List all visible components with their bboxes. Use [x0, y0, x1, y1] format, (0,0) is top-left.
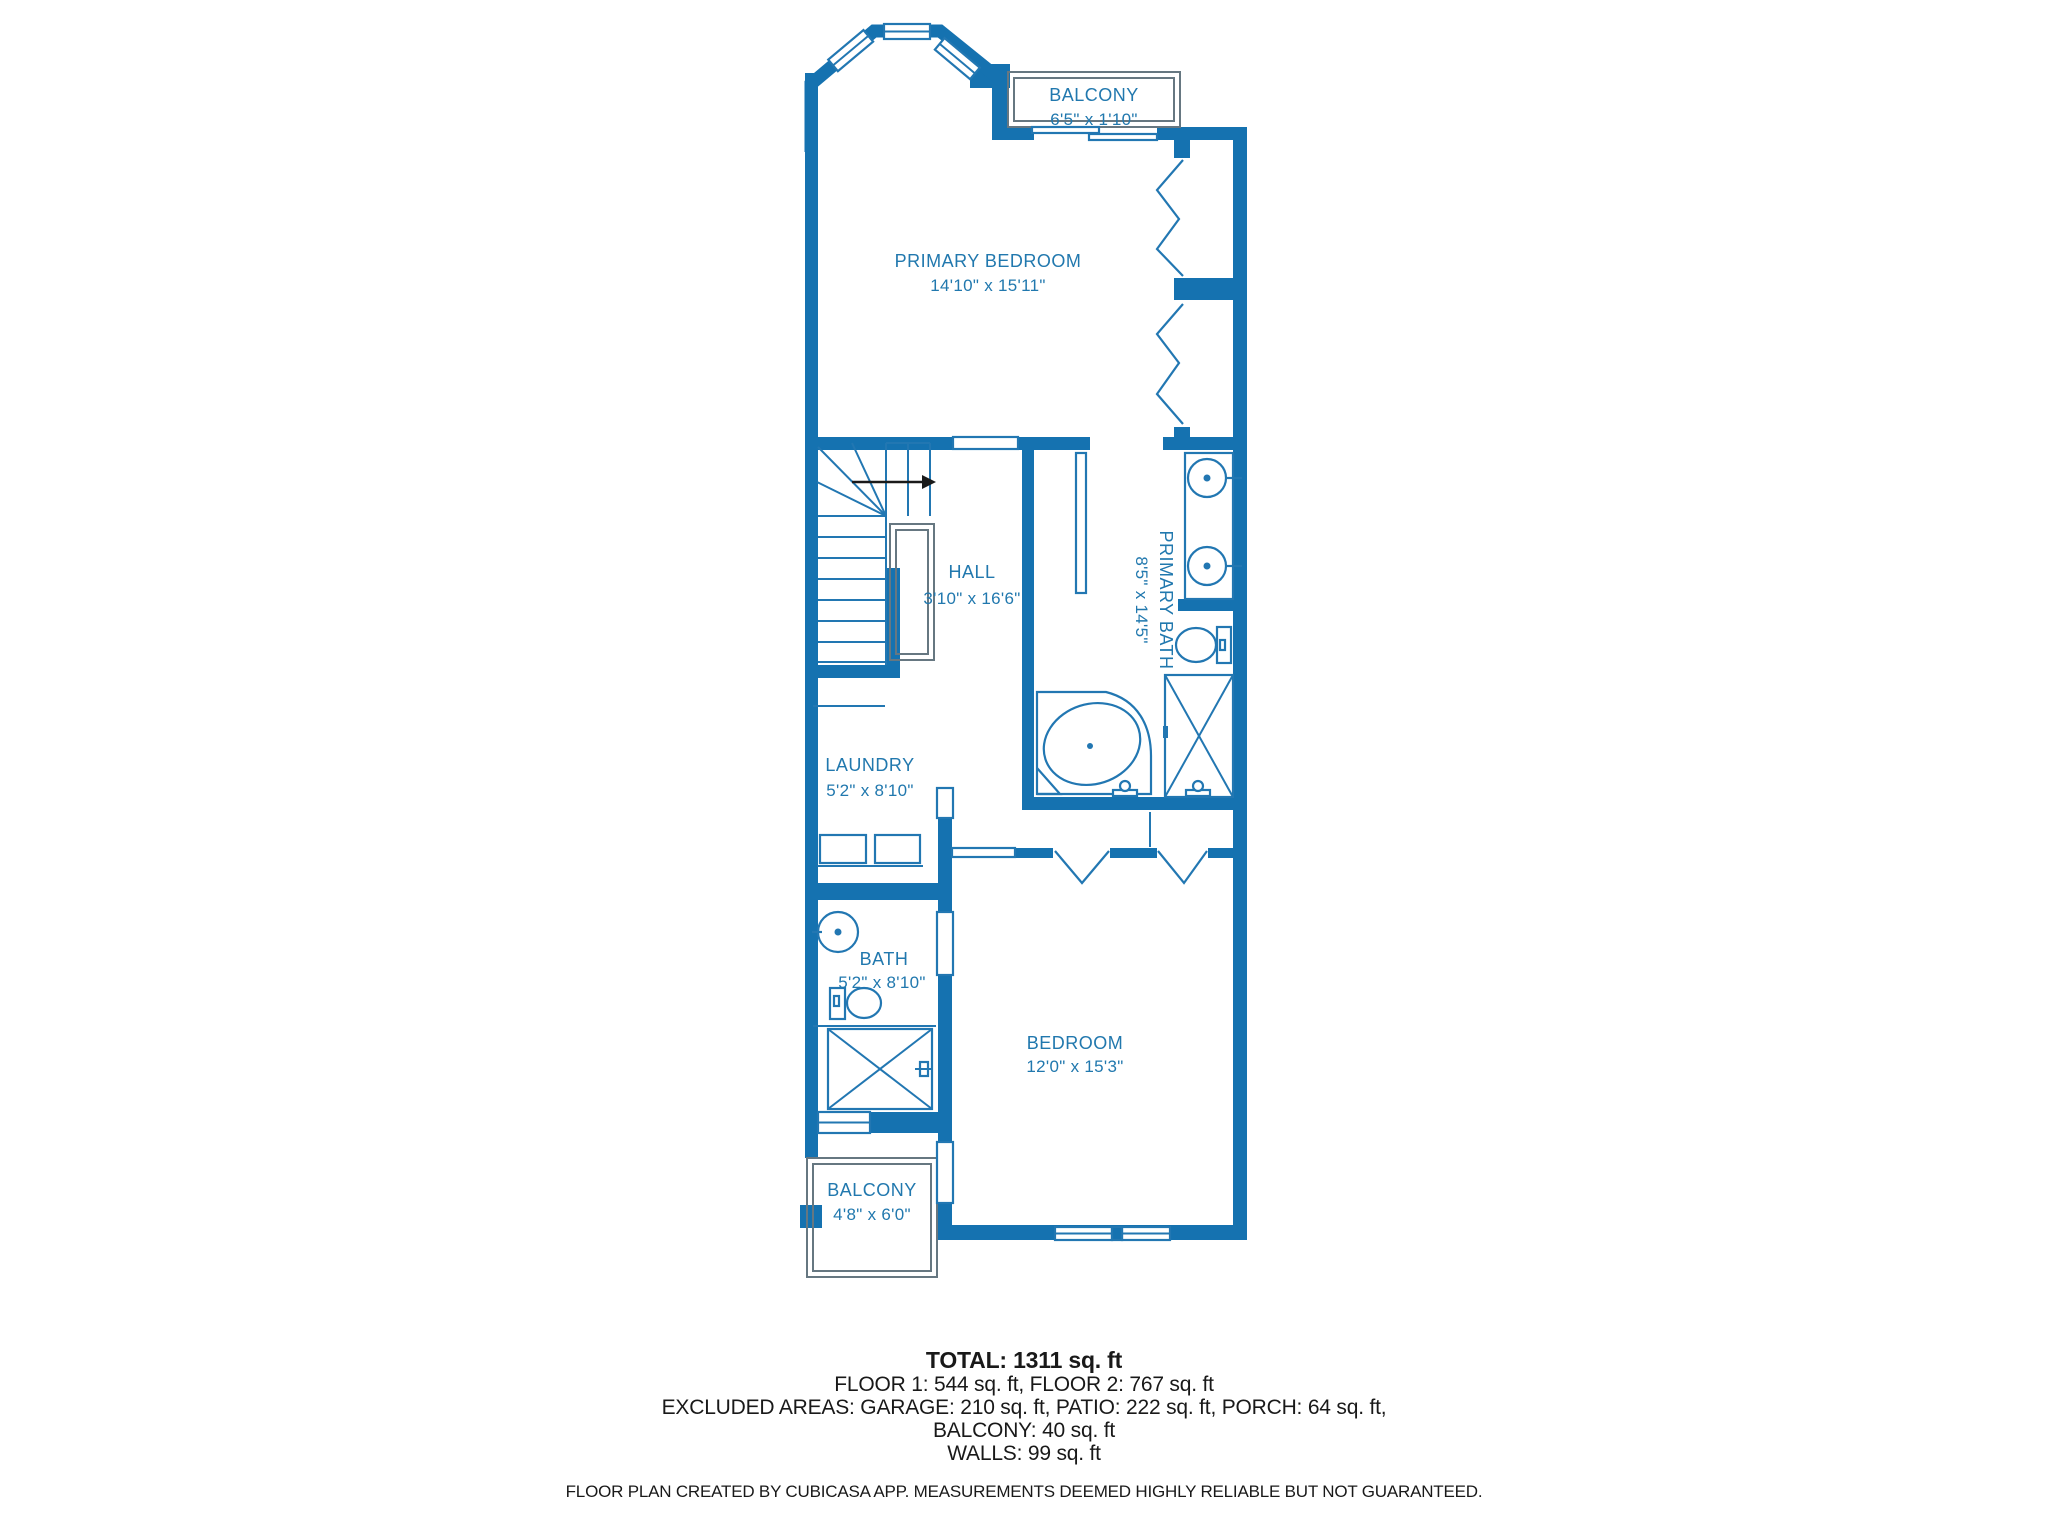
room-labels: BALCONY 6'5" x 1'10" PRIMARY BEDROOM 14'… — [825, 85, 1176, 1224]
cased-opening-icon — [953, 437, 1018, 449]
bifold-door-icon — [1157, 304, 1183, 424]
room-label-balcony-top: BALCONY — [1049, 85, 1139, 105]
room-dims-balcony-top: 6'5" x 1'10" — [1050, 110, 1137, 129]
bay-window-left-icon — [828, 30, 873, 71]
room-label-balcony-bottom: BALCONY — [827, 1180, 917, 1200]
floor-plan-page: BALCONY 6'5" x 1'10" PRIMARY BEDROOM 14'… — [0, 0, 2048, 1536]
cased-opening-icon — [952, 848, 1015, 857]
room-dims-bedroom: 12'0" x 15'3" — [1026, 1057, 1123, 1076]
bath-fixtures — [812, 912, 936, 1109]
measurement-summary: TOTAL: 1311 sq. ft FLOOR 1: 544 sq. ft, … — [0, 1348, 2048, 1465]
room-dims-primary-bedroom: 14'10" x 15'11" — [930, 276, 1045, 295]
double-door-icon — [1158, 851, 1207, 883]
summary-walls: WALLS: 99 sq. ft — [0, 1442, 2048, 1465]
room-label-hall: HALL — [948, 562, 995, 582]
room-dims-laundry: 5'2" x 8'10" — [826, 781, 913, 800]
dryer-icon — [875, 835, 920, 863]
bathtub-icon — [1033, 691, 1151, 797]
pocket-door-icon — [937, 912, 953, 975]
room-label-bath: BATH — [860, 949, 909, 969]
summary-excluded: EXCLUDED AREAS: GARAGE: 210 sq. ft, PATI… — [0, 1396, 2048, 1419]
staircase — [817, 443, 936, 665]
room-dims-balcony-bottom: 4'8" x 6'0" — [833, 1205, 911, 1224]
room-label-bedroom: BEDROOM — [1027, 1033, 1124, 1053]
sliding-door-icon — [1089, 134, 1157, 140]
room-label-laundry: LAUNDRY — [825, 755, 914, 775]
room-dims-hall: 3'10" x 16'6" — [923, 589, 1020, 608]
window-icon — [818, 1112, 870, 1133]
summary-floors: FLOOR 1: 544 sq. ft, FLOOR 2: 767 sq. ft — [0, 1373, 2048, 1396]
balcony-door-icon — [937, 1142, 953, 1203]
window-icon — [1055, 1227, 1170, 1240]
double-door-icon — [1055, 851, 1109, 883]
floor-plan-drawing: BALCONY 6'5" x 1'10" PRIMARY BEDROOM 14'… — [0, 0, 2048, 1536]
summary-total: TOTAL: 1311 sq. ft — [0, 1348, 2048, 1373]
stair-direction-arrow-icon — [852, 475, 936, 489]
shower-icon — [1163, 675, 1233, 797]
door-leaf-icon — [1076, 453, 1086, 593]
sink-icon — [812, 912, 858, 952]
disclaimer-text: FLOOR PLAN CREATED BY CUBICASA APP. MEAS… — [0, 1482, 2048, 1502]
toilet-icon — [1176, 627, 1231, 663]
room-dims-primary-bath: 8'5" x 14'5" — [1132, 556, 1151, 643]
wall-opening-icon — [937, 788, 953, 818]
summary-excluded-balcony: BALCONY: 40 sq. ft — [0, 1419, 2048, 1442]
shower-icon — [828, 1029, 933, 1109]
room-label-primary-bath: PRIMARY BATH — [1156, 530, 1176, 669]
room-label-primary-bedroom: PRIMARY BEDROOM — [895, 251, 1082, 271]
room-dims-bath: 5'2" x 8'10" — [838, 973, 925, 992]
bifold-door-icon — [1157, 160, 1183, 276]
bay-window-top-icon — [884, 24, 930, 39]
toilet-icon — [830, 988, 881, 1019]
washer-icon — [820, 835, 866, 863]
faucet-icon — [1186, 780, 1210, 796]
